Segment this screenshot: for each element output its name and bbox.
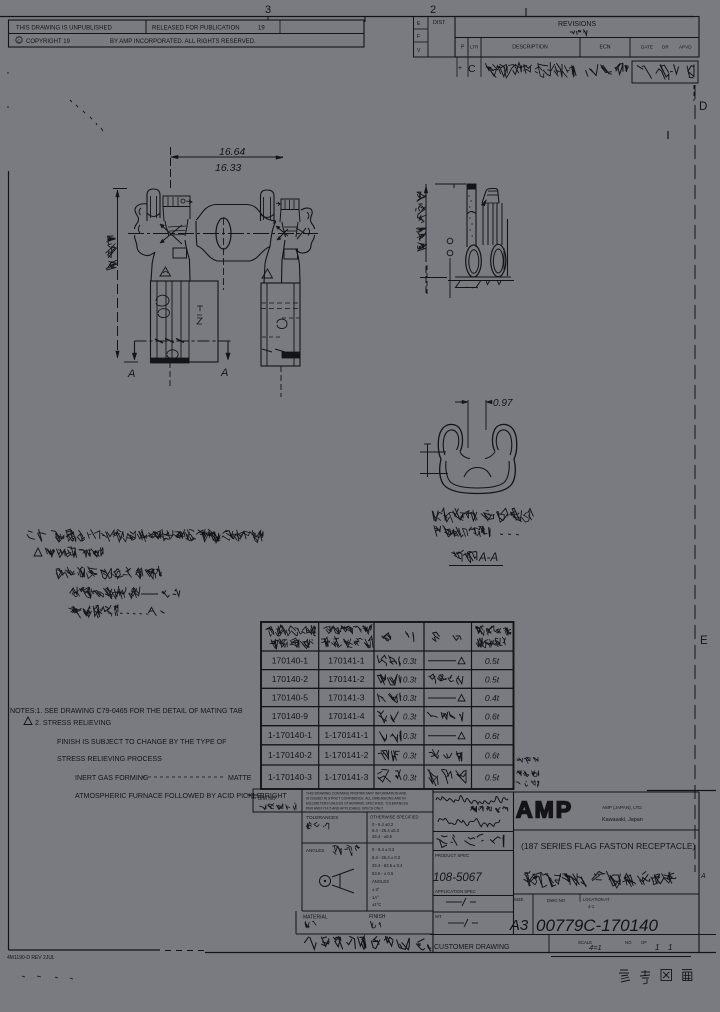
svg-text:STRESS RELIEVING PROCESS: STRESS RELIEVING PROCESS [57, 755, 162, 763]
svg-text:4=1: 4=1 [589, 943, 602, 952]
svg-text:170140-5: 170140-5 [272, 693, 309, 703]
svg-text:1-170140-2: 1-170140-2 [268, 750, 312, 760]
svg-text:RELEASED FOR PUBLICATION: RELEASED FOR PUBLICATION [152, 26, 240, 32]
svg-text:D: D [699, 101, 707, 113]
svg-text:2. STRESS RELIEVING: 2. STRESS RELIEVING [35, 719, 111, 727]
svg-text:25.4 - ±0.5: 25.4 - ±0.5 [372, 834, 393, 839]
svg-text:0.97: 0.97 [493, 398, 513, 409]
svg-text:±1°C: ±1°C [372, 902, 381, 907]
svg-text:(187 SERIES FLAG FASTON RECEPT: (187 SERIES FLAG FASTON RECEPTACLE) [521, 841, 696, 851]
svg-text:00779C-170140: 00779C-170140 [536, 916, 658, 935]
svg-text:108-5067: 108-5067 [433, 872, 482, 884]
svg-text:LOCATION AT: LOCATION AT [583, 897, 610, 902]
svg-text:LTR: LTR [470, 45, 479, 50]
svg-text:CUSTOMER DRAWING: CUSTOMER DRAWING [434, 944, 509, 951]
svg-text:DIST: DIST [433, 20, 446, 26]
svg-text:170140-1: 170140-1 [272, 655, 309, 665]
svg-text:170141-2: 170141-2 [328, 674, 365, 684]
svg-text:OTHERWISE SPECIFIED: OTHERWISE SPECIFIED [370, 815, 419, 820]
svg-text:0.5t: 0.5t [485, 773, 500, 783]
svg-text:1A°: 1A° [372, 895, 379, 900]
svg-text:P: P [461, 45, 465, 51]
svg-text:0.6t: 0.6t [485, 731, 500, 741]
svg-text:A: A [220, 367, 228, 379]
svg-text:1-170140-1: 1-170140-1 [268, 730, 312, 740]
svg-text:MATTE: MATTE [228, 774, 252, 782]
svg-text:APPLICATION SPEC: APPLICATION SPEC [435, 889, 476, 894]
svg-text:INERT GAS FORMING: INERT GAS FORMING [75, 774, 148, 782]
svg-text:MATERIAL: MATERIAL [303, 915, 328, 921]
svg-text:0.3t: 0.3t [403, 657, 417, 666]
svg-text:DESCRIPTION: DESCRIPTION [512, 45, 548, 51]
svg-text:170140-9: 170140-9 [272, 711, 309, 721]
svg-text:TOLERANCES: TOLERANCES [306, 815, 338, 821]
svg-text:0.6t: 0.6t [485, 750, 500, 760]
svg-text:THIS DRAWING CONTAINS PROPRIET: THIS DRAWING CONTAINS PROPRIETARY INFORM… [306, 792, 407, 796]
svg-text:1-170141-3: 1-170141-3 [324, 772, 368, 782]
svg-text:V: V [417, 48, 421, 54]
svg-text:ANGLES: ANGLES [306, 848, 324, 853]
svg-text:A3: A3 [509, 917, 529, 934]
svg-text:0.3t: 0.3t [403, 694, 417, 703]
svg-text:APVD: APVD [679, 45, 692, 50]
svg-text:WT: WT [435, 914, 442, 919]
svg-text:1-170141-2: 1-170141-2 [324, 750, 368, 760]
svg-text:DATE: DATE [641, 45, 653, 50]
svg-text:25.4 - 63.5 ± 0.4: 25.4 - 63.5 ± 0.4 [372, 863, 403, 868]
svg-text:DWG NO: DWG NO [547, 898, 566, 903]
svg-text:0.3t: 0.3t [403, 713, 417, 722]
svg-text:1-170140-3: 1-170140-3 [268, 772, 312, 782]
svg-text:0 - 6.4 ± 0.2: 0 - 6.4 ± 0.2 [372, 847, 395, 852]
svg-text:A: A [700, 873, 706, 880]
svg-text:ATMOSPHERIC FURNACE FOLLOWED B: ATMOSPHERIC FURNACE FOLLOWED BY ACID PIC… [75, 792, 262, 800]
svg-text:0.3t: 0.3t [403, 751, 417, 760]
svg-text:REVISIONS: REVISIONS [558, 21, 596, 28]
svg-text:0.4t: 0.4t [485, 693, 500, 703]
svg-text:170141-1: 170141-1 [328, 655, 365, 665]
svg-text:NOTES:1. SEE DRAWING C79-0465: NOTES:1. SEE DRAWING C79-0465 FOR THE DE… [10, 707, 243, 715]
svg-text:0 - 6.4 ±0.2: 0 - 6.4 ±0.2 [372, 822, 394, 827]
svg-text:ECN: ECN [600, 45, 611, 51]
svg-text:FINISH IS SUBJECT TO CHANGE BY: FINISH IS SUBJECT TO CHANGE BY THE TYPE … [57, 738, 227, 746]
svg-text:Kawasaki, Japan: Kawasaki, Japan [602, 817, 643, 823]
svg-text:A-A: A-A [478, 552, 499, 564]
svg-text:MILLIMETERS UNLESS OTHERWISE S: MILLIMETERS UNLESS OTHERWISE SPECIFIED. … [306, 802, 409, 806]
svg-text:F: F [417, 34, 420, 40]
svg-text:IS ISSUED IN STRICT CONFIDENCE: IS ISSUED IN STRICT CONFIDENCE. ALL DIME… [306, 797, 406, 801]
svg-text:0.3t: 0.3t [403, 732, 417, 741]
svg-text:COPYRIGHT 19: COPYRIGHT 19 [26, 39, 71, 45]
svg-text:19: 19 [258, 26, 265, 32]
svg-text:ANGLES: ANGLES [372, 879, 389, 884]
svg-text:0.5t: 0.5t [485, 675, 500, 685]
svg-text:3: 3 [265, 4, 271, 16]
svg-text:BY AMP INCORPORATED. ALL RI: BY AMP INCORPORATED. ALL RIGHTS RESERVED… [110, 39, 256, 45]
svg-text:FINISH: FINISH [369, 914, 386, 920]
svg-text:SIZE: SIZE [514, 897, 524, 902]
svg-text:B/M NO: B/M NO [258, 796, 276, 802]
svg-text:0.5t: 0.5t [485, 656, 500, 666]
svg-text:170140-2: 170140-2 [272, 674, 309, 684]
svg-text:0.3t: 0.3t [403, 774, 417, 783]
svg-text:PRODUCT SPEC: PRODUCT SPEC [435, 853, 469, 858]
svg-text:6.4 - 25.4 ± 0.3: 6.4 - 25.4 ± 0.3 [372, 855, 401, 860]
svg-text:+: + [458, 65, 462, 72]
svg-text:AMP (JAPAN), LTD.: AMP (JAPAN), LTD. [602, 805, 643, 810]
svg-text:NO: NO [625, 940, 632, 945]
svg-text:DR: DR [662, 45, 669, 50]
svg-text:4M1190-D REV 2JUL: 4M1190-D REV 2JUL [7, 955, 55, 961]
svg-text:1: 1 [668, 943, 672, 952]
svg-text:0.3t: 0.3t [403, 676, 417, 685]
svg-text:170141-4: 170141-4 [328, 711, 365, 721]
svg-text:PER ANSI Y14.5 AND APPLICABLE: PER ANSI Y14.5 AND APPLICABLE SPECS ONLY… [306, 807, 384, 811]
svg-text:—: — [251, 796, 256, 802]
svg-text:E: E [417, 21, 421, 27]
svg-text:0.6t: 0.6t [485, 712, 500, 722]
svg-text:170141-3: 170141-3 [328, 693, 365, 703]
svg-text:2: 2 [430, 4, 436, 16]
svg-text:1-170141-1: 1-170141-1 [324, 730, 368, 740]
svg-text:A: A [127, 368, 135, 380]
svg-text:1: 1 [655, 943, 659, 952]
svg-text:16.64: 16.64 [219, 146, 245, 158]
svg-text:6.4 - 25.4 ±0.3: 6.4 - 25.4 ±0.3 [372, 828, 400, 833]
svg-text:OF: OF [641, 940, 647, 945]
svg-text:E: E [700, 635, 708, 647]
svg-text:16.33: 16.33 [215, 162, 241, 174]
svg-text:THIS DRAWING IS UNPUBLISHED: THIS DRAWING IS UNPUBLISHED [16, 26, 112, 32]
svg-text:4-1: 4-1 [588, 904, 595, 909]
svg-text:AMP: AMP [516, 797, 573, 823]
svg-text:63.5 - ± 0.5: 63.5 - ± 0.5 [372, 871, 394, 876]
svg-text:C: C [468, 63, 476, 75]
svg-text:± 3°: ± 3° [372, 887, 380, 892]
